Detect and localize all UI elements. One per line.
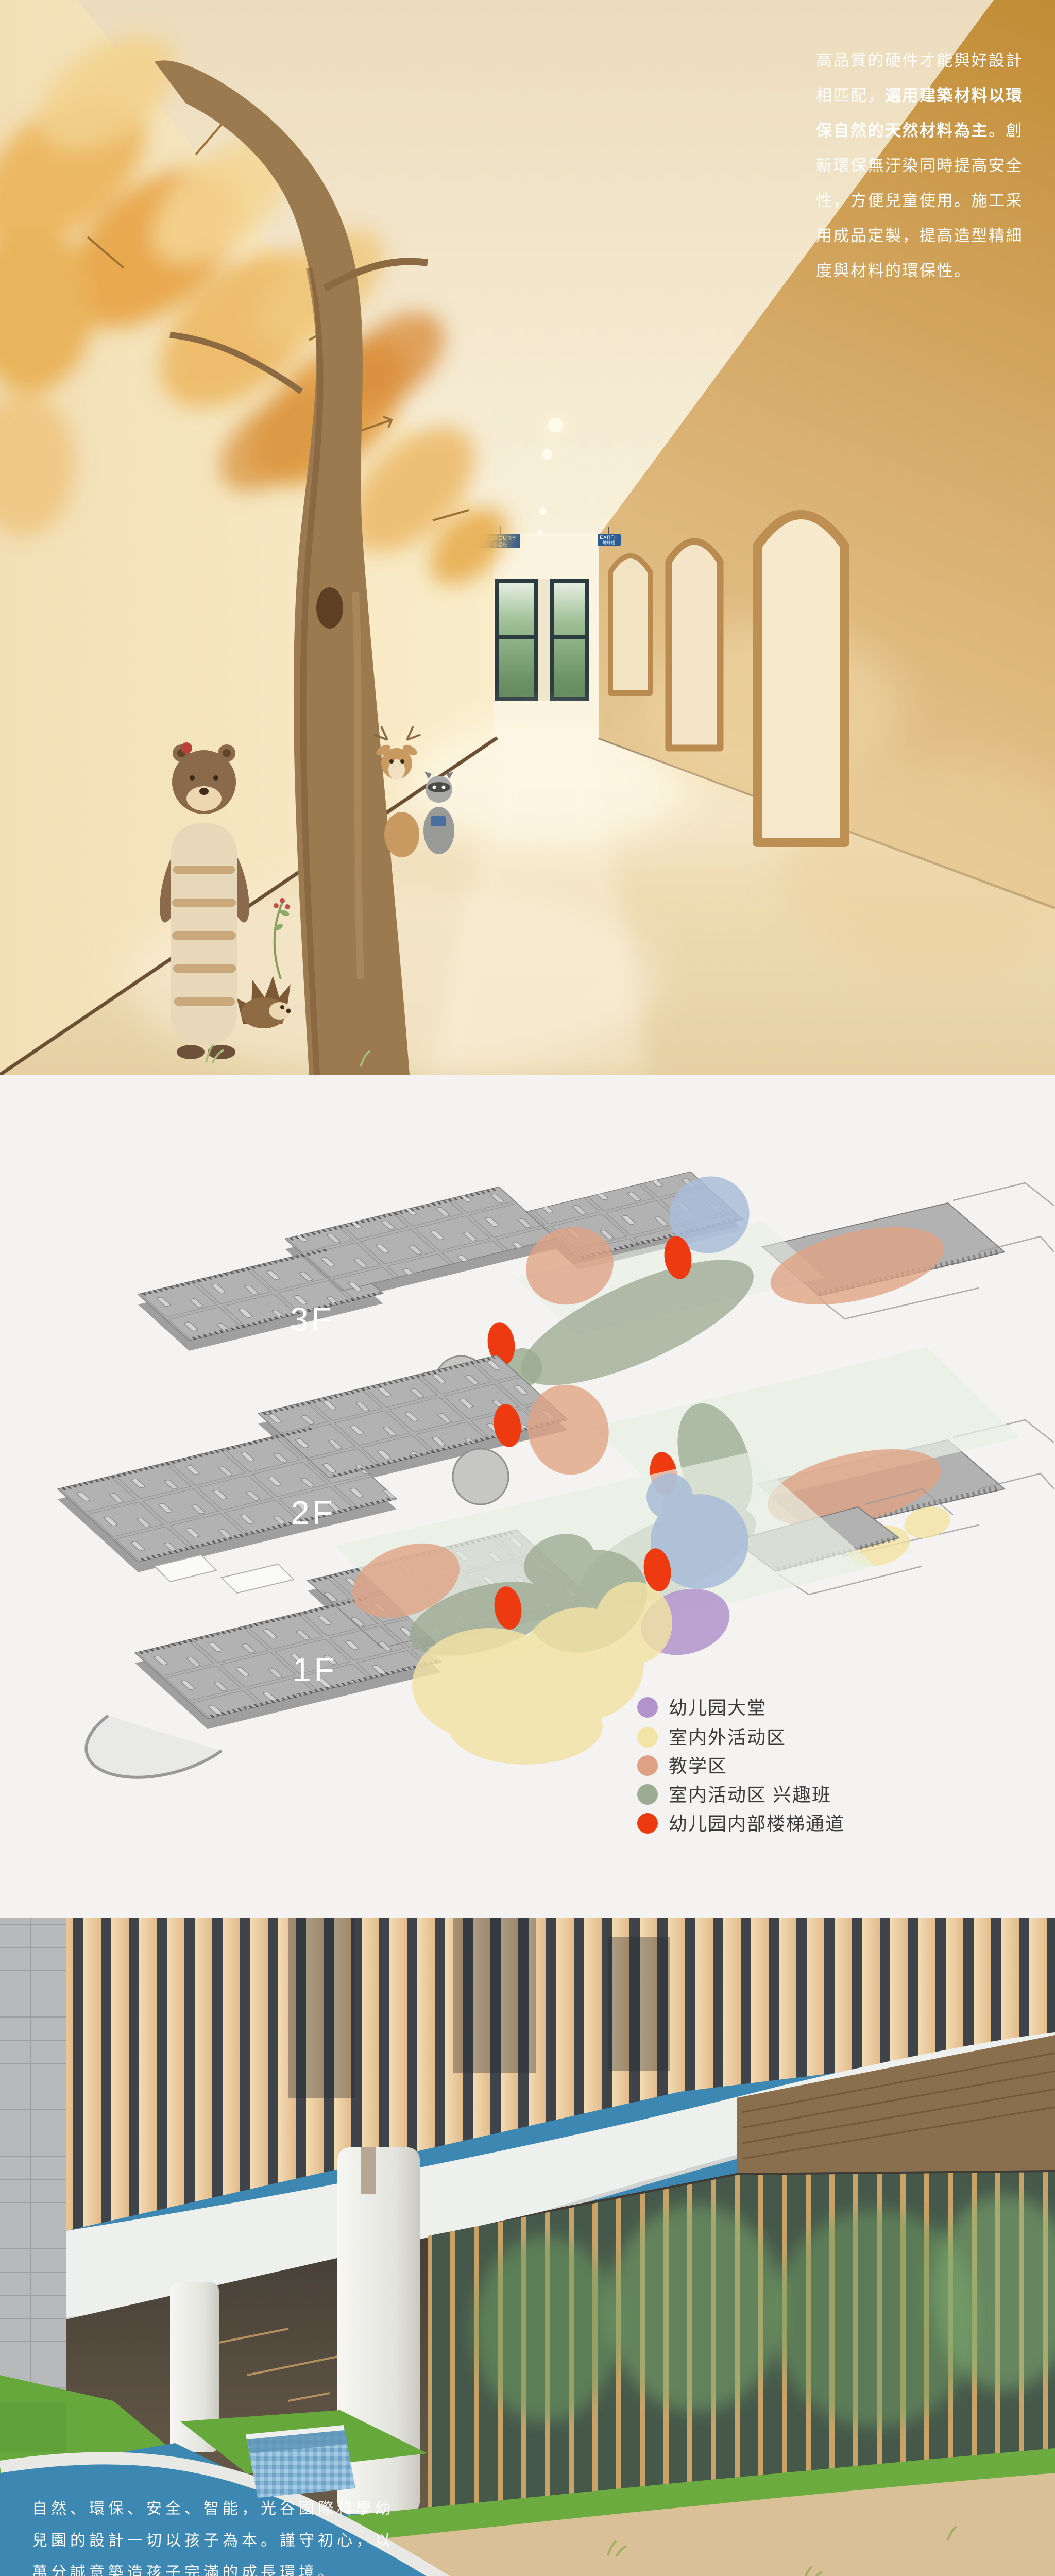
legend-dot-lobby-icon bbox=[637, 1697, 658, 1718]
lawn-left bbox=[0, 2402, 66, 2452]
floor-label-1f: 1F bbox=[293, 1651, 337, 1688]
legend-label-indoor: 室内活动区 兴趣班 bbox=[669, 1784, 831, 1805]
floor-label-3f: 3F bbox=[290, 1301, 335, 1338]
hero-line-bold: 選用建築材料以環 bbox=[885, 87, 1023, 105]
bear-hat bbox=[181, 742, 192, 754]
hero-line: 新環保無汙染同時提高安全 bbox=[816, 148, 1037, 183]
mosaic-pool bbox=[246, 2428, 355, 2498]
floor-diagram: 3F bbox=[0, 1075, 1055, 1918]
hero-line: 度與材料的環保性。 bbox=[816, 253, 1037, 289]
legend-dot-teaching-icon bbox=[637, 1755, 658, 1776]
balconies-2f bbox=[155, 1555, 294, 1593]
exterior-photo-art bbox=[0, 1918, 1055, 2576]
photo3-line: 萬分誠意築造孩子完滿的成長環境。 bbox=[32, 2557, 753, 2576]
hero-line-normal: 。創 bbox=[989, 122, 1023, 140]
hero-line-normal: 相匹配， bbox=[816, 87, 885, 105]
raccoon-book bbox=[431, 816, 446, 826]
column-lamp bbox=[361, 2147, 376, 2194]
hero-photo-corridor: MERCURY 水星班 EARTH 地球班 bbox=[0, 0, 1055, 1075]
photo3-line: 兒園的設計一切以孩子為本。謹守初心，以 bbox=[32, 2525, 753, 2557]
diagram-legend: 幼儿园大堂 室内外活动区 教学区 室内活动区 兴趣班 幼儿园内部楼梯通道 bbox=[637, 1697, 845, 1834]
terrace-2f bbox=[453, 1449, 508, 1504]
entrance-canopy bbox=[86, 1716, 222, 1777]
floor-label-2f: 2F bbox=[291, 1494, 336, 1531]
sign-earth-en: EARTH bbox=[600, 535, 618, 540]
legend-dot-indoor-icon bbox=[637, 1784, 658, 1805]
photo3-line: 自然、環保、安全、智能，光谷國際科學幼 bbox=[32, 2493, 753, 2525]
trunk-knot bbox=[316, 587, 343, 629]
side-building bbox=[0, 1918, 66, 2402]
legend-label-teaching: 教学区 bbox=[669, 1755, 727, 1776]
legend-label-lobby: 幼儿园大堂 bbox=[669, 1697, 767, 1718]
exterior-photo-track: 自然、環保、安全、智能，光谷國際科學幼 兒園的設計一切以孩子為本。謹守初心，以 … bbox=[0, 1918, 1055, 2576]
end-windows bbox=[495, 579, 589, 701]
trunk-highlight bbox=[355, 592, 361, 979]
hero-paragraph: 高品質的硬件才能與好設計 相匹配，選用建築材料以環 保自然的天然材料為主。創 新… bbox=[816, 43, 1037, 289]
legend-dot-outdoor-icon bbox=[637, 1727, 658, 1748]
hero-line: 用成品定製，提高造型精細 bbox=[816, 218, 1037, 253]
floor-diagram-art: 3F bbox=[0, 1075, 1055, 1918]
hero-line-bold: 保自然的天然材料為主 bbox=[816, 122, 989, 140]
hero-line: 保自然的天然材料為主。創 bbox=[816, 113, 1037, 148]
photo3-paragraph: 自然、環保、安全、智能，光谷國際科學幼 兒園的設計一切以孩子為本。謹守初心，以 … bbox=[32, 2493, 753, 2576]
legend-label-outdoor: 室内外活动区 bbox=[669, 1727, 786, 1748]
legend-label-stairs: 幼儿园内部楼梯通道 bbox=[669, 1813, 845, 1834]
hero-line: 相匹配，選用建築材料以環 bbox=[816, 78, 1037, 113]
legend-dot-stairs-icon bbox=[637, 1813, 658, 1834]
hero-line: 高品質的硬件才能與好設計 bbox=[816, 43, 1037, 78]
sign-earth-cn: 地球班 bbox=[603, 540, 615, 545]
hero-line: 性，方便兒童使用。施工采 bbox=[816, 183, 1037, 218]
